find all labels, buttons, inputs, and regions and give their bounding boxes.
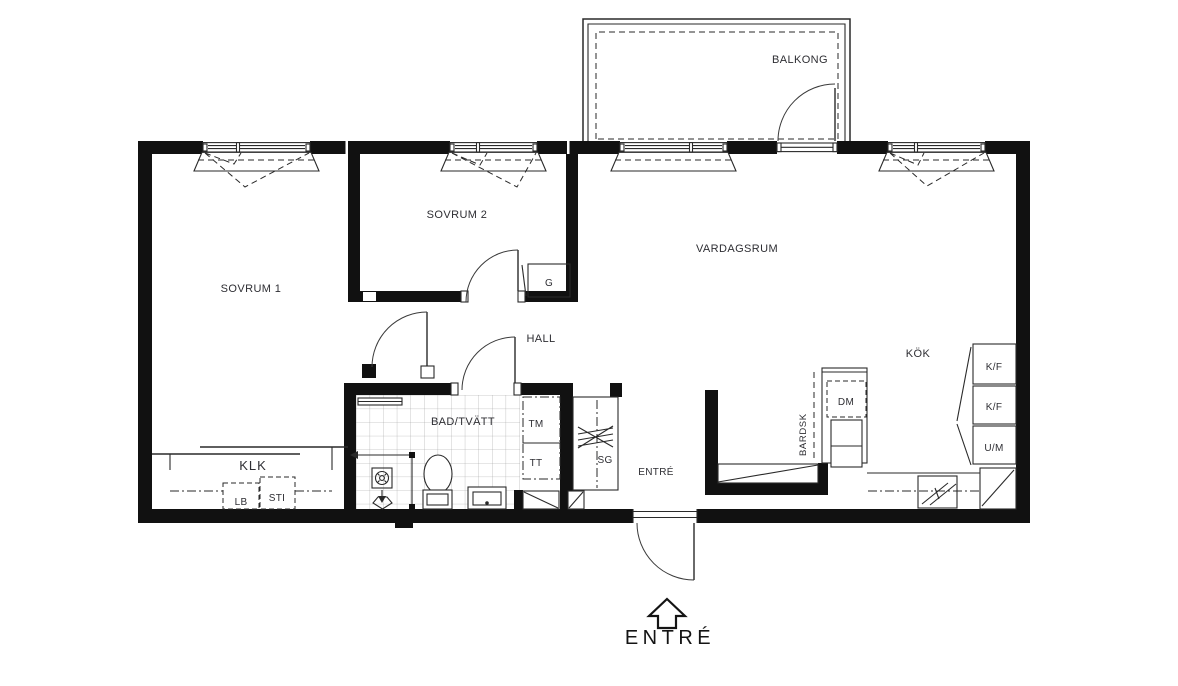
entre-niche bbox=[718, 464, 818, 483]
sink-cabinet bbox=[831, 420, 862, 467]
door-entrance bbox=[633, 509, 697, 580]
label-klk: KLK bbox=[239, 458, 267, 473]
shafts bbox=[523, 491, 584, 509]
label-vardagsrum: VARDAGSRUM bbox=[696, 243, 778, 255]
label-bad-tvatt: BAD/TVÄTT bbox=[431, 416, 495, 428]
label-lb: LB bbox=[235, 497, 248, 508]
balcony-door-arc bbox=[778, 84, 835, 141]
cleaning-closet bbox=[573, 397, 618, 490]
floor-plan-page: BALKONG SOVRUM 1 SOVRUM 2 VARDAGSRUM KÖK… bbox=[0, 0, 1178, 686]
door-sovrum2 bbox=[461, 250, 525, 302]
label-um: U/M bbox=[984, 443, 1003, 454]
window-sovrum2 bbox=[441, 143, 546, 187]
sink-icon bbox=[468, 487, 506, 509]
label-tt: TT bbox=[530, 458, 543, 469]
label-sti: STI bbox=[269, 493, 285, 504]
label-sovrum2: SOVRUM 2 bbox=[427, 209, 488, 221]
label-balkong: BALKONG bbox=[772, 54, 828, 66]
balcony bbox=[583, 19, 850, 141]
entrance-arrow-icon bbox=[649, 599, 685, 628]
klk-closet bbox=[152, 447, 348, 509]
label-entre-room: ENTRÉ bbox=[638, 465, 673, 478]
door-sovrum1 bbox=[372, 312, 434, 378]
label-sg: SG bbox=[597, 455, 612, 466]
toilet-icon bbox=[423, 455, 452, 509]
window-sovrum1 bbox=[194, 143, 319, 187]
label-entre-main: ENTRÉ bbox=[625, 626, 715, 649]
label-kf-upper: K/F bbox=[986, 362, 1002, 373]
label-tm: TM bbox=[528, 419, 543, 430]
walls bbox=[138, 141, 1030, 528]
door-bathroom bbox=[451, 337, 521, 395]
label-g: G bbox=[545, 278, 553, 289]
label-sovrum1: SOVRUM 1 bbox=[221, 283, 282, 295]
label-dm: DM bbox=[838, 397, 854, 408]
window-vardagsrum bbox=[611, 143, 736, 171]
label-hall: HALL bbox=[526, 333, 555, 345]
label-kok: KÖK bbox=[906, 348, 931, 360]
balcony-door-threshold bbox=[777, 143, 837, 152]
window-kok bbox=[879, 143, 994, 186]
label-bardisk: BARDSK bbox=[798, 413, 809, 456]
floor-plan-drawing: BALKONG SOVRUM 1 SOVRUM 2 VARDAGSRUM KÖK… bbox=[0, 0, 1178, 686]
label-kf-lower: K/F bbox=[986, 402, 1002, 413]
